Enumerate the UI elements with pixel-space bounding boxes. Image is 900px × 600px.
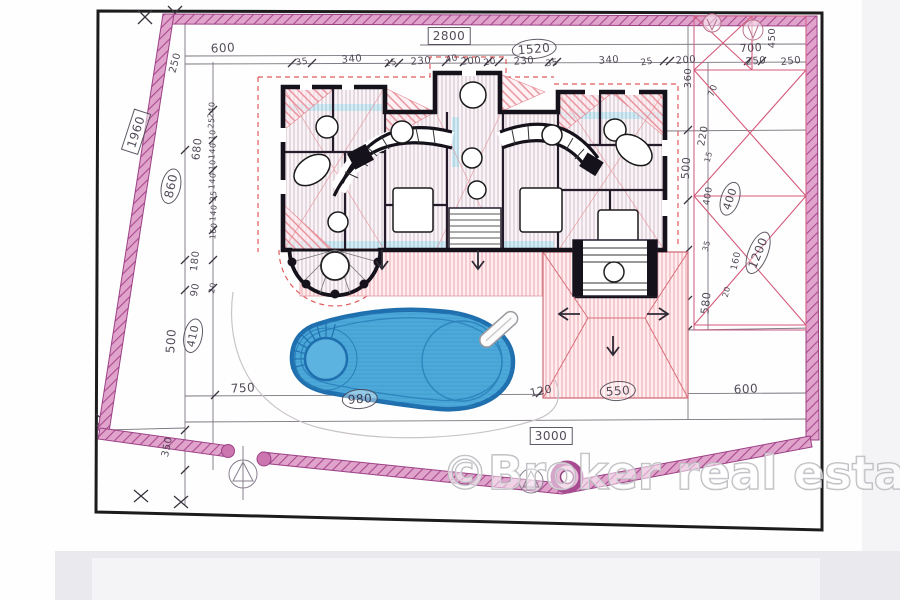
site-plan-scan: ©Broker real estate 60028001520353402523… — [0, 0, 900, 600]
footer-gray-bar — [55, 551, 900, 600]
interior-stairs — [449, 208, 501, 250]
scan-edge-shadow — [862, 0, 900, 600]
site-plan-drawing: ©Broker real estate — [0, 0, 900, 600]
watermark-text: ©Broker real estate — [442, 446, 900, 500]
entrance-stairs — [573, 240, 657, 296]
swimming-pool — [232, 292, 559, 438]
gate-post — [222, 445, 235, 458]
gate-post — [257, 452, 271, 466]
pergola-trellis — [694, 14, 806, 330]
